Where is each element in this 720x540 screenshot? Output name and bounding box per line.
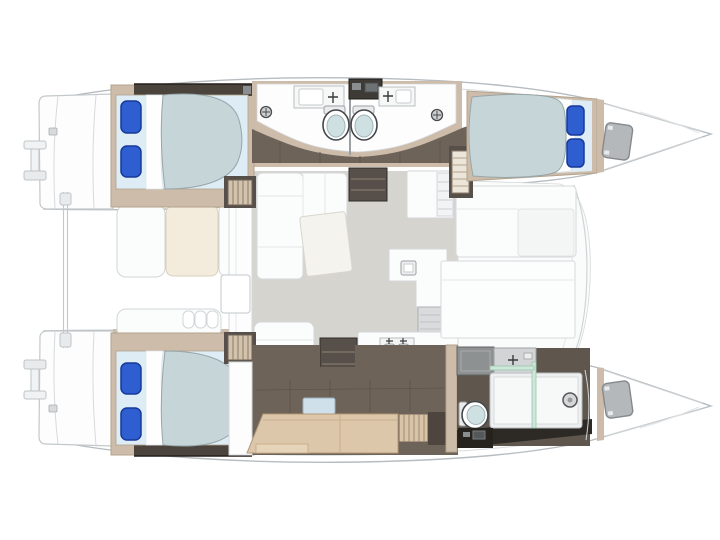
shower-glass-panel bbox=[490, 366, 534, 370]
toilet-lid bbox=[467, 406, 485, 425]
hatch-glass bbox=[602, 122, 634, 160]
desk-panel-blue bbox=[303, 398, 335, 414]
coffee-table-top bbox=[300, 211, 353, 276]
pillow bbox=[121, 363, 141, 394]
cockpit-table-cushion bbox=[166, 206, 218, 276]
davit-post bbox=[31, 149, 39, 171]
bench-tab bbox=[207, 311, 218, 328]
davit-bar bbox=[24, 391, 46, 399]
corridor-floor-aft bbox=[252, 345, 320, 370]
hatch-hinge bbox=[604, 386, 610, 391]
davit-base bbox=[24, 171, 46, 180]
toilet-lid bbox=[327, 115, 345, 137]
cabinet-detail bbox=[473, 431, 485, 439]
settee-cushion bbox=[518, 209, 574, 256]
bench-tab bbox=[195, 311, 206, 328]
head-sink-basin bbox=[396, 90, 411, 103]
bow-trim bbox=[597, 99, 604, 173]
head-sink-basin bbox=[299, 89, 323, 105]
davit-bar bbox=[24, 141, 46, 149]
bathroom-divider bbox=[446, 345, 457, 452]
shower-drain-center bbox=[568, 398, 573, 403]
upper-aft-companionway bbox=[224, 176, 256, 208]
dining-table bbox=[441, 261, 575, 338]
bow-hatch bbox=[602, 122, 634, 160]
nav-cabinet bbox=[407, 171, 454, 218]
dining-settee bbox=[456, 186, 576, 257]
lower-fwd-bathroom bbox=[446, 345, 604, 452]
bench-tab bbox=[183, 311, 194, 328]
island-sink-bowl bbox=[404, 264, 413, 272]
aft-wall-band-lower bbox=[229, 362, 252, 455]
floor-plan-canvas bbox=[0, 0, 720, 540]
platform-cleat bbox=[49, 128, 57, 135]
crossbar-clip bbox=[60, 193, 71, 205]
cabinet-detail bbox=[463, 432, 470, 437]
toilet-lid bbox=[355, 115, 373, 137]
catamaran-floor-plan bbox=[0, 0, 720, 540]
pillow bbox=[121, 101, 141, 133]
cockpit-seat-left bbox=[117, 205, 165, 277]
locker-detail bbox=[365, 83, 378, 92]
upper-fwd-cabin bbox=[467, 91, 604, 181]
soap-tray bbox=[524, 353, 532, 359]
bow-trim bbox=[597, 367, 604, 441]
coffee-table bbox=[300, 211, 353, 276]
shelf-body bbox=[349, 168, 387, 201]
stern-crossbar bbox=[60, 192, 71, 348]
wood-step bbox=[256, 444, 308, 453]
lower-aft-companionway bbox=[224, 332, 256, 364]
companionway-shelf bbox=[349, 168, 387, 201]
lower-hull-interior bbox=[111, 332, 702, 456]
locker-detail bbox=[352, 83, 361, 90]
davit-base bbox=[24, 360, 46, 369]
pillow bbox=[121, 146, 141, 177]
pillow bbox=[567, 106, 584, 135]
bow-hatch bbox=[602, 380, 634, 418]
aft-cockpit bbox=[113, 186, 241, 350]
saloon-sofa-left bbox=[257, 173, 303, 279]
sliding-door bbox=[221, 275, 250, 313]
crossbar-clip bbox=[60, 333, 71, 347]
pillow bbox=[121, 408, 141, 440]
platform-shape bbox=[39, 331, 113, 446]
platform-shape bbox=[39, 94, 113, 209]
table-top bbox=[441, 261, 575, 338]
bed-duvet bbox=[469, 94, 566, 177]
davit-post bbox=[31, 369, 39, 391]
corridor-floor-mid bbox=[355, 345, 458, 370]
pillow bbox=[567, 139, 584, 167]
shower-glass-panel bbox=[532, 362, 536, 428]
hatch-hinge bbox=[608, 125, 614, 130]
hatch-glass bbox=[602, 380, 634, 418]
hatch-hinge bbox=[608, 411, 614, 416]
wardrobe-detail bbox=[243, 86, 251, 94]
platform-cleat bbox=[49, 405, 57, 412]
hatch-hinge bbox=[604, 150, 610, 155]
